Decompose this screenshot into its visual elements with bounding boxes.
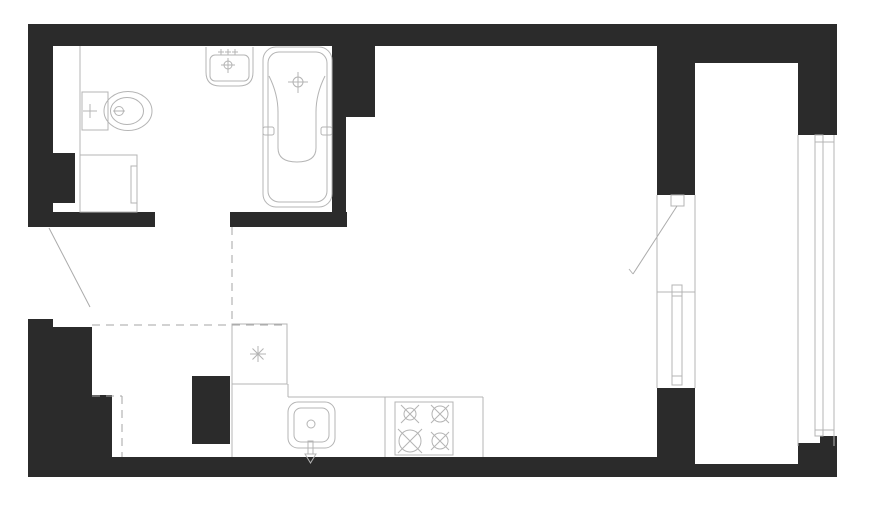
kitchen-sink-drain — [307, 420, 315, 428]
bathtub-faucet-cross — [288, 72, 308, 93]
kitchen-duct-column — [192, 376, 230, 444]
hidden-lines-layer — [92, 227, 287, 457]
balcony-partition-upper — [657, 46, 695, 195]
toilet-valve-cross — [83, 104, 97, 118]
balcony-door-frame — [671, 195, 684, 206]
bathtub-basin — [269, 76, 325, 162]
left-wall-protrusion — [53, 153, 75, 203]
kitchen-sink-inner — [294, 408, 329, 442]
left-wall-lower — [28, 327, 92, 457]
stove-burner-tr-cross — [431, 405, 449, 423]
balcony-door-leaf-tick — [629, 269, 633, 274]
bottom-wall — [28, 457, 695, 477]
balcony-door-leaf — [633, 206, 677, 274]
floor-plan-svg — [0, 0, 870, 514]
left-wall-lower-extension — [92, 395, 112, 457]
balcony-right-wall-bottom — [798, 443, 837, 477]
balcony-glazing-frame — [815, 135, 823, 436]
wash-basin-supply-crosses — [218, 49, 238, 55]
wash-basin-inner — [210, 55, 249, 81]
bathroom-east-wall-pier — [332, 46, 375, 117]
stove-burner-bl-cross — [398, 429, 422, 453]
top-wall — [28, 24, 657, 46]
left-wall-upper — [28, 24, 53, 226]
stove-burner-br-cross — [431, 432, 449, 450]
bathroom-south-wall-left — [28, 212, 155, 227]
balcony-right-wall-top — [798, 24, 837, 135]
window-frame — [672, 285, 682, 385]
floor-plan-canvas — [0, 0, 870, 514]
walls-layer — [28, 24, 837, 477]
washing-machine-door — [131, 166, 137, 203]
left-wall-lower-step — [28, 319, 53, 327]
fixtures-layer — [49, 46, 834, 463]
entrance-door-leaf — [49, 228, 90, 307]
washing-machine-body — [80, 155, 137, 212]
bathroom-south-wall-right — [230, 212, 347, 227]
wash-basin-faucet-cross — [221, 58, 235, 73]
kitchen-corner-unit-symbol — [250, 346, 266, 362]
